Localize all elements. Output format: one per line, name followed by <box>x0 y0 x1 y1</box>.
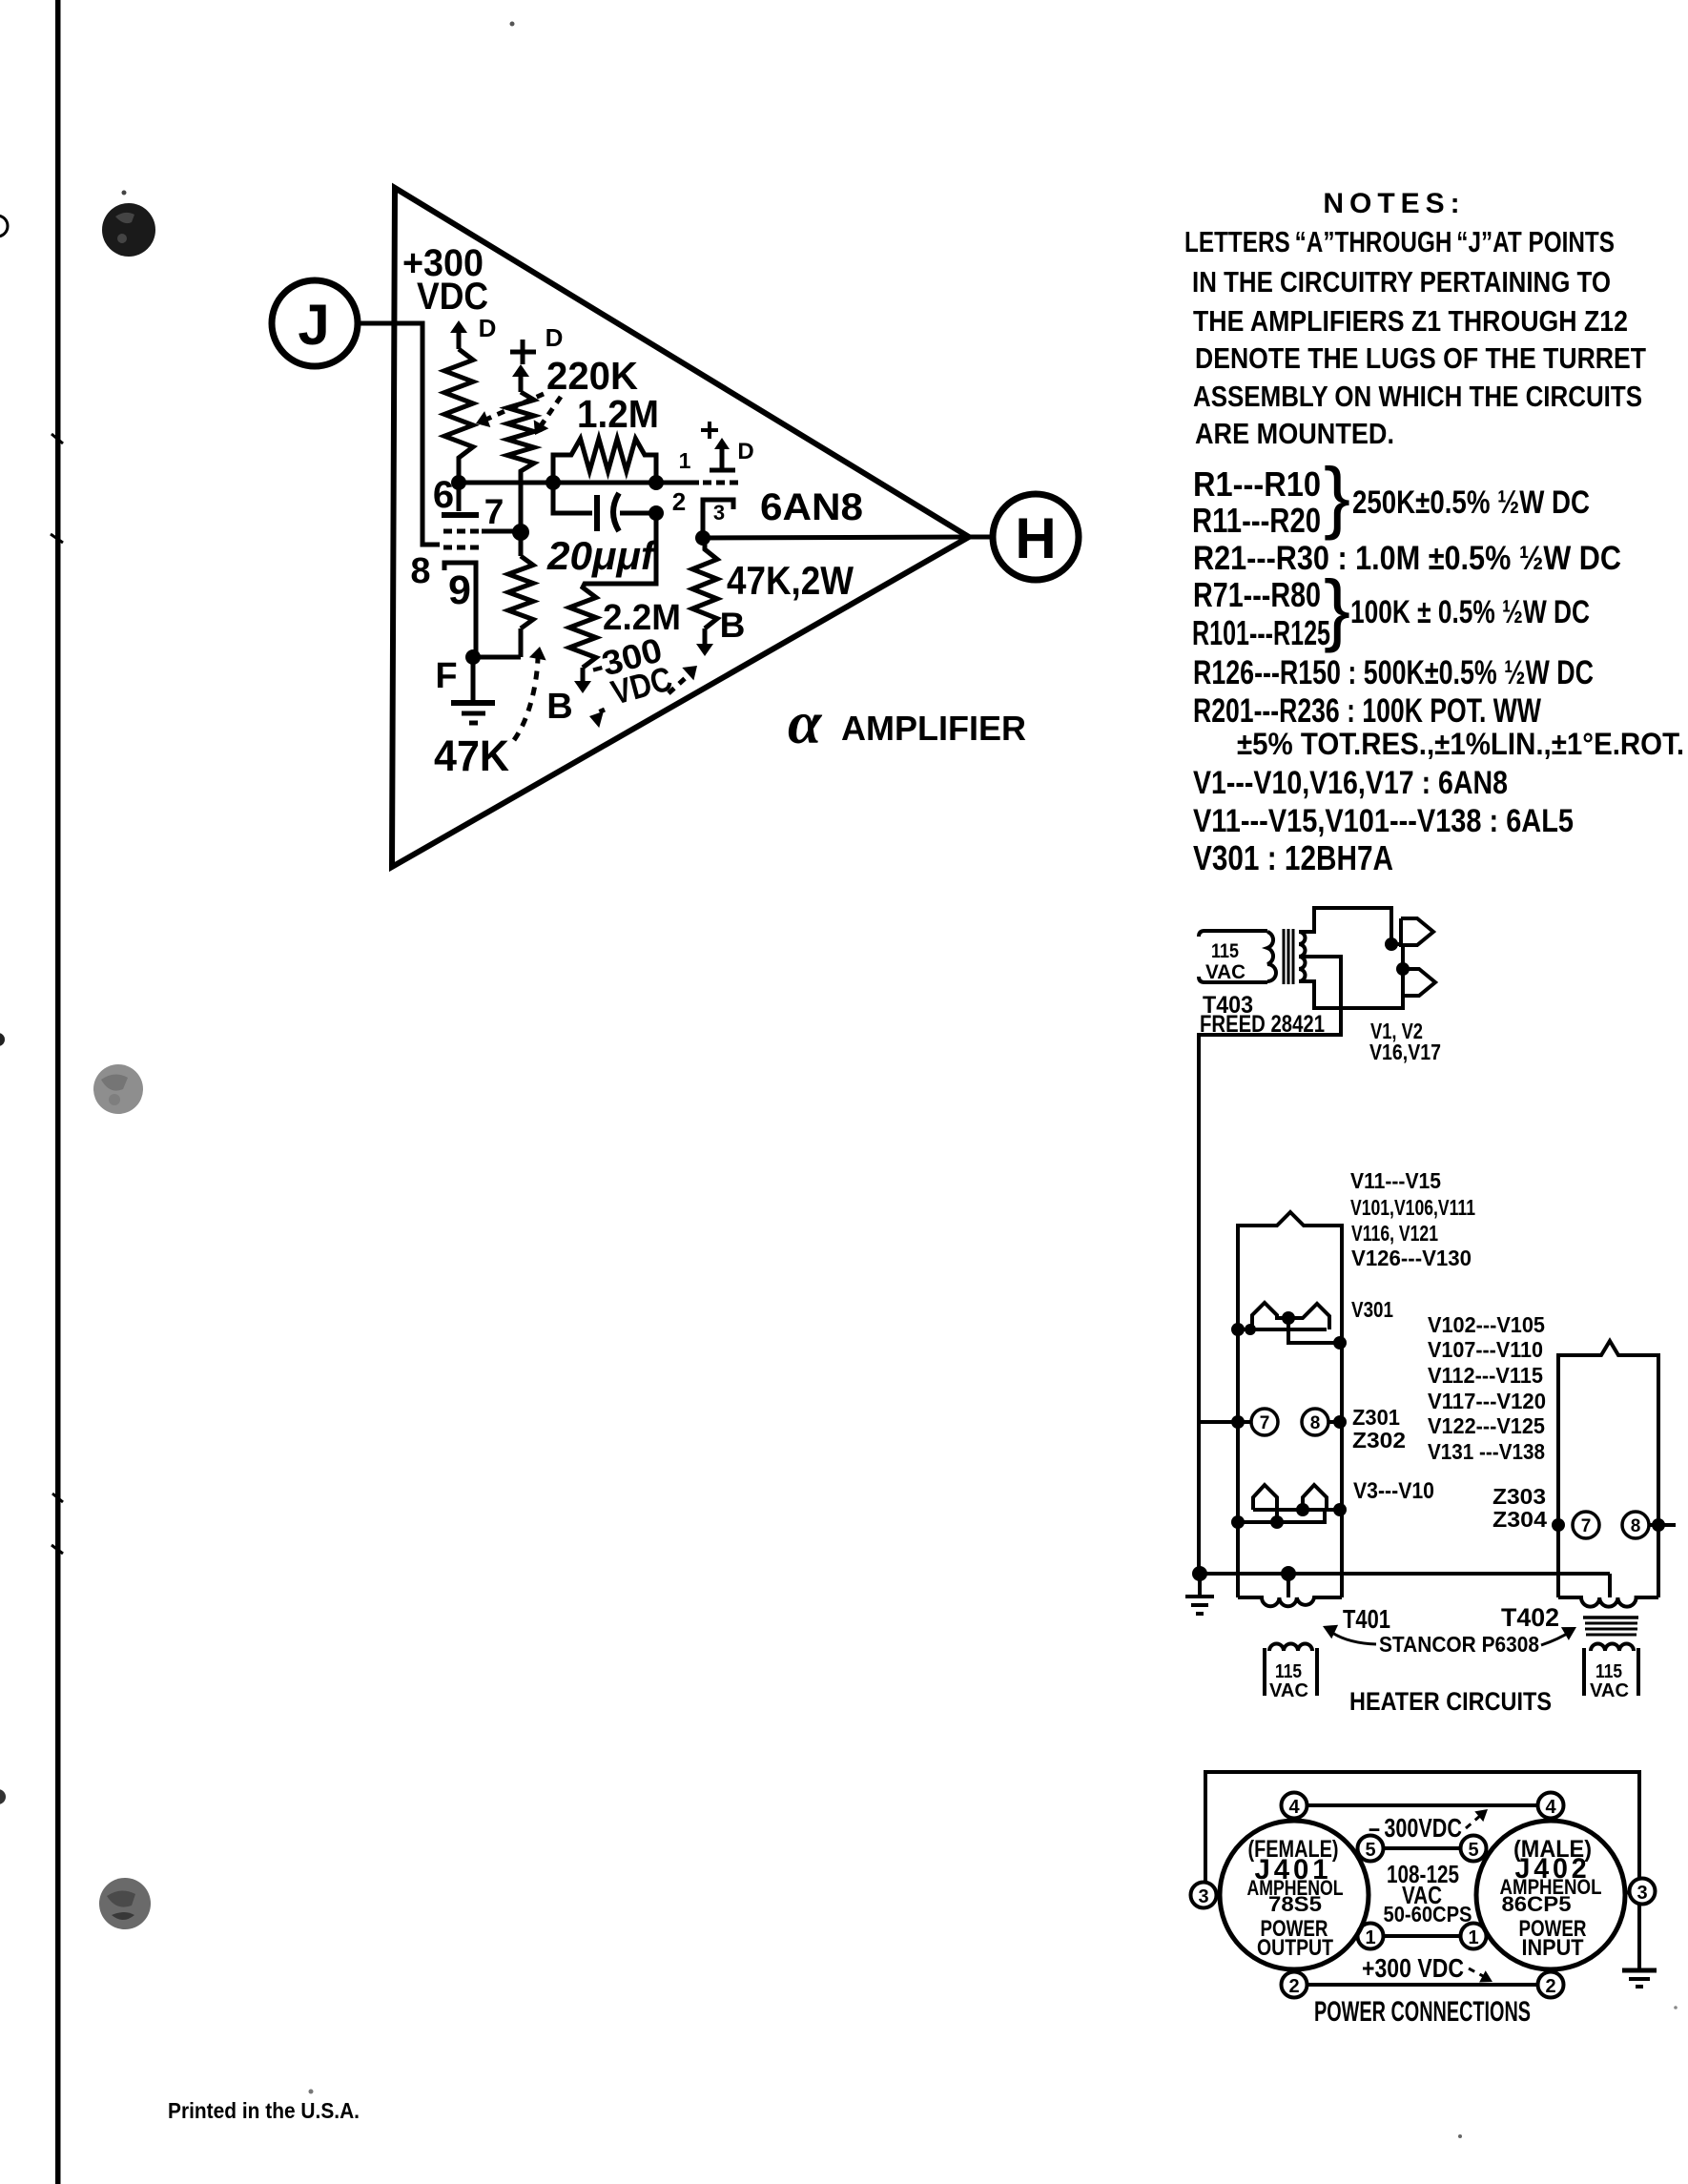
svg-text:THE AMPLIFIERS Z1 THROUGH Z12: THE AMPLIFIERS Z1 THROUGH Z12 <box>1193 304 1628 338</box>
svg-text:4: 4 <box>1545 1797 1556 1818</box>
svg-text:V117---V120: V117---V120 <box>1428 1389 1546 1413</box>
svg-text:47K: 47K <box>434 731 509 780</box>
svg-text:R101---R125: R101---R125 <box>1192 613 1330 652</box>
svg-text:6AN8: 6AN8 <box>760 486 863 528</box>
svg-text:VAC: VAC <box>1269 1680 1308 1701</box>
svg-text:6: 6 <box>433 474 454 516</box>
svg-text:R21---R30 : 1.0M ±0.5% ½W DC: R21---R30 : 1.0M ±0.5% ½W DC <box>1193 540 1621 577</box>
svg-text:5: 5 <box>1365 1840 1375 1861</box>
svg-text:VDC: VDC <box>417 276 488 318</box>
svg-text:2: 2 <box>1288 1976 1299 1997</box>
svg-text:V101,V106,V111: V101,V106,V111 <box>1350 1195 1475 1220</box>
svg-text:100K ± 0.5% ½W DC: 100K ± 0.5% ½W DC <box>1350 594 1590 630</box>
svg-text:V16,V17: V16,V17 <box>1369 1040 1441 1064</box>
svg-text:R126---R150 : 500K±0.5% ½W DC: R126---R150 : 500K±0.5% ½W DC <box>1193 654 1594 691</box>
svg-text:LETTERS “A”THROUGH “J”AT POINT: LETTERS “A”THROUGH “J”AT POINTS <box>1184 225 1615 258</box>
svg-text:POWER CONNECTIONS: POWER CONNECTIONS <box>1314 1996 1531 2028</box>
svg-text:78S5: 78S5 <box>1268 1892 1322 1916</box>
svg-text:B: B <box>546 687 572 727</box>
svg-text:R201---R236 : 100K POT. WW: R201---R236 : 100K POT. WW <box>1193 692 1541 730</box>
svg-text:INPUT: INPUT <box>1522 1935 1584 1961</box>
svg-text:IN THE CIRCUITRY PERTAINING TO: IN THE CIRCUITRY PERTAINING TO <box>1192 265 1611 299</box>
svg-text:}: } <box>1324 451 1350 541</box>
svg-text:V122---V125: V122---V125 <box>1428 1413 1545 1438</box>
svg-text:+300 VDC: +300 VDC <box>1362 1953 1464 1983</box>
svg-text:D: D <box>546 323 564 352</box>
svg-text:9: 9 <box>448 567 471 613</box>
svg-text:V102---V105: V102---V105 <box>1428 1312 1545 1337</box>
svg-text:2: 2 <box>1545 1976 1555 1997</box>
svg-text:STANCOR P6308: STANCOR P6308 <box>1379 1632 1539 1657</box>
svg-text:Z301: Z301 <box>1352 1405 1400 1430</box>
svg-text:V11---V15: V11---V15 <box>1350 1168 1441 1193</box>
svg-text:T402: T402 <box>1501 1603 1559 1632</box>
svg-text:250K±0.5% ½W DC: 250K±0.5% ½W DC <box>1352 484 1590 521</box>
svg-text:Z303: Z303 <box>1492 1484 1546 1509</box>
svg-text:V11---V15,V101---V138 : 6AL5: V11---V15,V101---V138 : 6AL5 <box>1193 803 1574 839</box>
svg-text:ASSEMBLY ON WHICH THE CIRCUITS: ASSEMBLY ON WHICH THE CIRCUITS <box>1193 380 1642 413</box>
svg-text:R71---R80: R71---R80 <box>1193 575 1321 614</box>
svg-text:1: 1 <box>1468 1927 1478 1948</box>
svg-text:7: 7 <box>1581 1516 1592 1536</box>
svg-text:V131 ---V138: V131 ---V138 <box>1428 1439 1545 1464</box>
svg-text:}: } <box>1324 564 1350 653</box>
svg-text:8: 8 <box>1631 1516 1641 1536</box>
svg-text:V112---V115: V112---V115 <box>1428 1363 1543 1388</box>
svg-text:V3---V10: V3---V10 <box>1353 1478 1434 1504</box>
svg-text:7: 7 <box>484 492 504 531</box>
svg-text:3: 3 <box>1637 1883 1647 1904</box>
svg-text:50-60CPS: 50-60CPS <box>1384 1902 1472 1926</box>
svg-text:OUTPUT: OUTPUT <box>1257 1935 1333 1961</box>
svg-text:86CP5: 86CP5 <box>1502 1892 1572 1916</box>
svg-text:DENOTE THE LUGS OF THE TURRET: DENOTE THE LUGS OF THE TURRET <box>1195 341 1646 375</box>
svg-text:4: 4 <box>1288 1797 1300 1818</box>
svg-text:1.2M: 1.2M <box>577 392 659 436</box>
svg-text:ARE MOUNTED.: ARE MOUNTED. <box>1195 417 1394 450</box>
svg-text:1: 1 <box>679 448 691 473</box>
svg-text:±5% TOT.RES.,±1%LIN.,±1°E.ROT.: ±5% TOT.RES.,±1%LIN.,±1°E.ROT. <box>1237 727 1684 761</box>
svg-text:8: 8 <box>410 551 430 591</box>
svg-text:V301: V301 <box>1351 1297 1393 1322</box>
svg-text:AMPLIFIER: AMPLIFIER <box>841 709 1026 748</box>
svg-text:115: 115 <box>1211 940 1239 962</box>
svg-text:R11---R20: R11---R20 <box>1192 501 1321 540</box>
svg-text:V116, V121: V116, V121 <box>1351 1221 1438 1246</box>
svg-text:V301 : 12BH7A: V301 : 12BH7A <box>1193 838 1393 877</box>
svg-text:20μμf: 20μμf <box>546 533 658 578</box>
svg-text:2: 2 <box>672 487 686 516</box>
svg-text:VAC: VAC <box>1590 1680 1629 1701</box>
svg-text:α: α <box>788 689 823 756</box>
svg-text:V1---V10,V16,V17 : 6AN8: V1---V10,V16,V17 : 6AN8 <box>1193 765 1508 801</box>
svg-text:8: 8 <box>1310 1413 1321 1433</box>
svg-text:VAC: VAC <box>1205 961 1245 983</box>
svg-text:R1---R10: R1---R10 <box>1193 464 1321 504</box>
svg-text:H: H <box>1015 506 1056 570</box>
svg-text:115: 115 <box>1275 1661 1302 1682</box>
svg-text:V107---V110: V107---V110 <box>1428 1337 1543 1362</box>
svg-text:F: F <box>435 656 457 696</box>
svg-text:2.2M: 2.2M <box>603 598 681 638</box>
svg-text:Z302: Z302 <box>1352 1428 1406 1453</box>
svg-text:J: J <box>298 293 329 357</box>
svg-text:HEATER CIRCUITS: HEATER CIRCUITS <box>1349 1687 1552 1716</box>
svg-text:47K,2W: 47K,2W <box>727 558 854 603</box>
svg-text:V126---V130: V126---V130 <box>1351 1246 1472 1270</box>
svg-text:Printed in the U.S.A.: Printed in the U.S.A. <box>168 2098 360 2123</box>
svg-text:Z304: Z304 <box>1492 1507 1547 1532</box>
svg-text:7: 7 <box>1260 1413 1270 1433</box>
svg-text:1: 1 <box>1365 1927 1375 1948</box>
svg-text:D: D <box>737 439 753 464</box>
svg-text:NOTES:: NOTES: <box>1323 188 1465 219</box>
svg-text:3: 3 <box>1198 1886 1208 1907</box>
svg-text:– 300VDC: – 300VDC <box>1369 1813 1462 1843</box>
svg-text:D: D <box>479 314 497 342</box>
svg-text:T401: T401 <box>1343 1604 1390 1634</box>
svg-text:5: 5 <box>1468 1840 1478 1861</box>
svg-text:B: B <box>720 606 746 645</box>
svg-text:3: 3 <box>713 501 725 525</box>
svg-text:115: 115 <box>1595 1661 1622 1682</box>
